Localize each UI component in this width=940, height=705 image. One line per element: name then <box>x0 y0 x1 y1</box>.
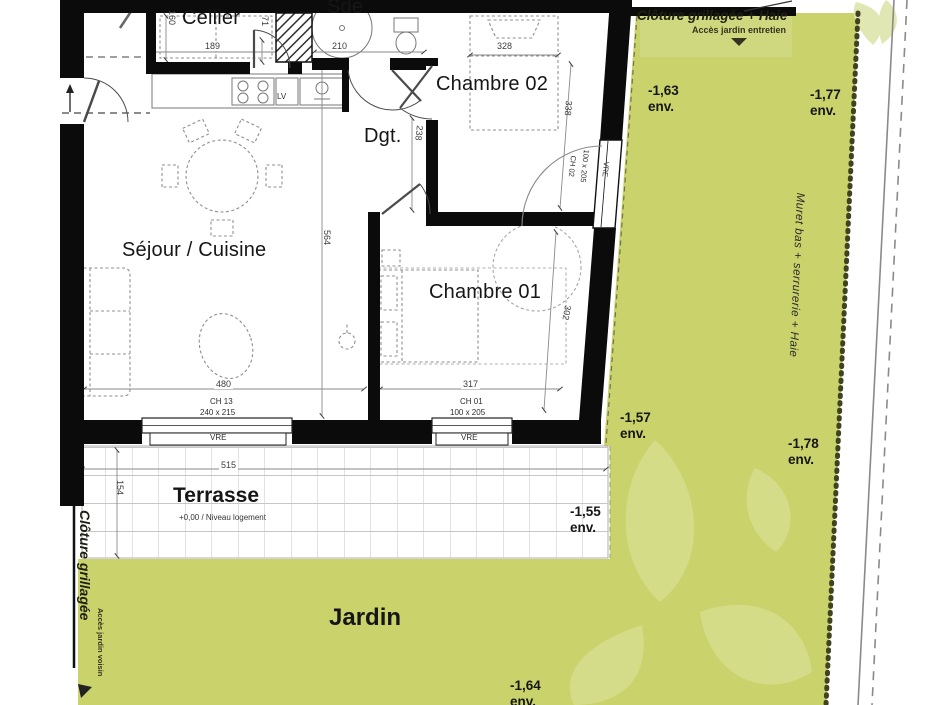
kitchen-counter-icon <box>152 74 345 108</box>
boundary-line-dashed <box>872 0 907 705</box>
shutter-label-ch02: VRE <box>601 161 610 177</box>
dim-cellier-height: 160 <box>167 10 176 25</box>
dim-ch01-depth: 302 <box>560 304 572 320</box>
dim-terrasse-depth: 154 <box>115 480 124 495</box>
ceiling-fixture-icon <box>339 322 355 349</box>
terrasse-level-note: +0,00 / Niveau logement <box>179 514 266 522</box>
level-marker: -1,63env. <box>648 83 679 115</box>
door-sde <box>348 70 421 110</box>
entry-arrow-icon <box>66 84 74 93</box>
terrace-area <box>82 446 608 558</box>
dim-cellier-door: 71 <box>260 16 269 26</box>
level-marker: -1,57env. <box>620 410 651 442</box>
fence-top-label: Clôture grillagée + Haie <box>637 9 787 23</box>
room-label-cellier: Cellier <box>182 8 240 29</box>
foliage-top-right <box>854 0 897 45</box>
opening-size-ch01: 100 x 205 <box>450 409 485 417</box>
fence-left-label: Clôture grillagée <box>77 510 92 620</box>
level-marker: -1,77env. <box>810 87 841 119</box>
shaft-hatched <box>276 13 312 62</box>
floor-plan-canvas: Cellier Sde Chambre 02 Dgt. Séjour / Cui… <box>0 0 940 705</box>
opening-tag-ch01: CH 01 <box>460 398 483 406</box>
access-left-label: Accès jardin voisin <box>96 608 104 676</box>
entrance-door <box>66 78 128 122</box>
dim-ch02-depth: 338 <box>562 100 573 116</box>
opening-tag-ch02: CH 02 <box>567 155 577 177</box>
opening-size-ch13: 240 x 215 <box>200 409 235 417</box>
room-label-dgt: Dgt. <box>364 126 401 147</box>
room-label-sejour: Séjour / Cuisine <box>122 240 266 261</box>
room-label-chambre02: Chambre 02 <box>436 74 548 95</box>
dim-sejour-width: 480 <box>214 380 233 389</box>
boundary-line-solid <box>858 0 894 705</box>
door-ch01 <box>382 184 430 214</box>
dishwasher-label: LV <box>277 93 286 101</box>
dim-ch01-width: 317 <box>461 380 480 389</box>
level-marker: -1,64env. <box>510 678 541 705</box>
room-label-chambre01: Chambre 01 <box>429 282 541 303</box>
dim-sejour-depth: 564 <box>322 230 331 245</box>
door-ch02 <box>400 66 432 119</box>
wc-icon <box>394 18 418 54</box>
dim-dgt-length: 238 <box>413 125 424 141</box>
dim-cellier-width: 189 <box>203 42 222 51</box>
dining-table-icon <box>162 119 282 236</box>
level-marker: -1,78env. <box>788 436 819 468</box>
room-label-terrasse: Terrasse <box>173 485 259 507</box>
dim-ch02-bed: 328 <box>495 42 514 51</box>
dim-sde-width: 210 <box>330 42 349 51</box>
opening-tag-ch13: CH 13 <box>210 398 233 406</box>
dim-terrasse-width: 515 <box>219 461 238 470</box>
room-label-sde: Sde <box>327 0 363 18</box>
bed-ch01-icon <box>378 250 566 364</box>
room-label-jardin: Jardin <box>329 605 401 630</box>
shutter-label-ch01: VRE <box>461 434 477 442</box>
shutter-label-sejour: VRE <box>210 434 226 442</box>
access-top-label: Accès jardin entretien <box>692 26 786 35</box>
level-marker: -1,55env. <box>570 504 601 536</box>
rug-icon <box>191 307 261 386</box>
